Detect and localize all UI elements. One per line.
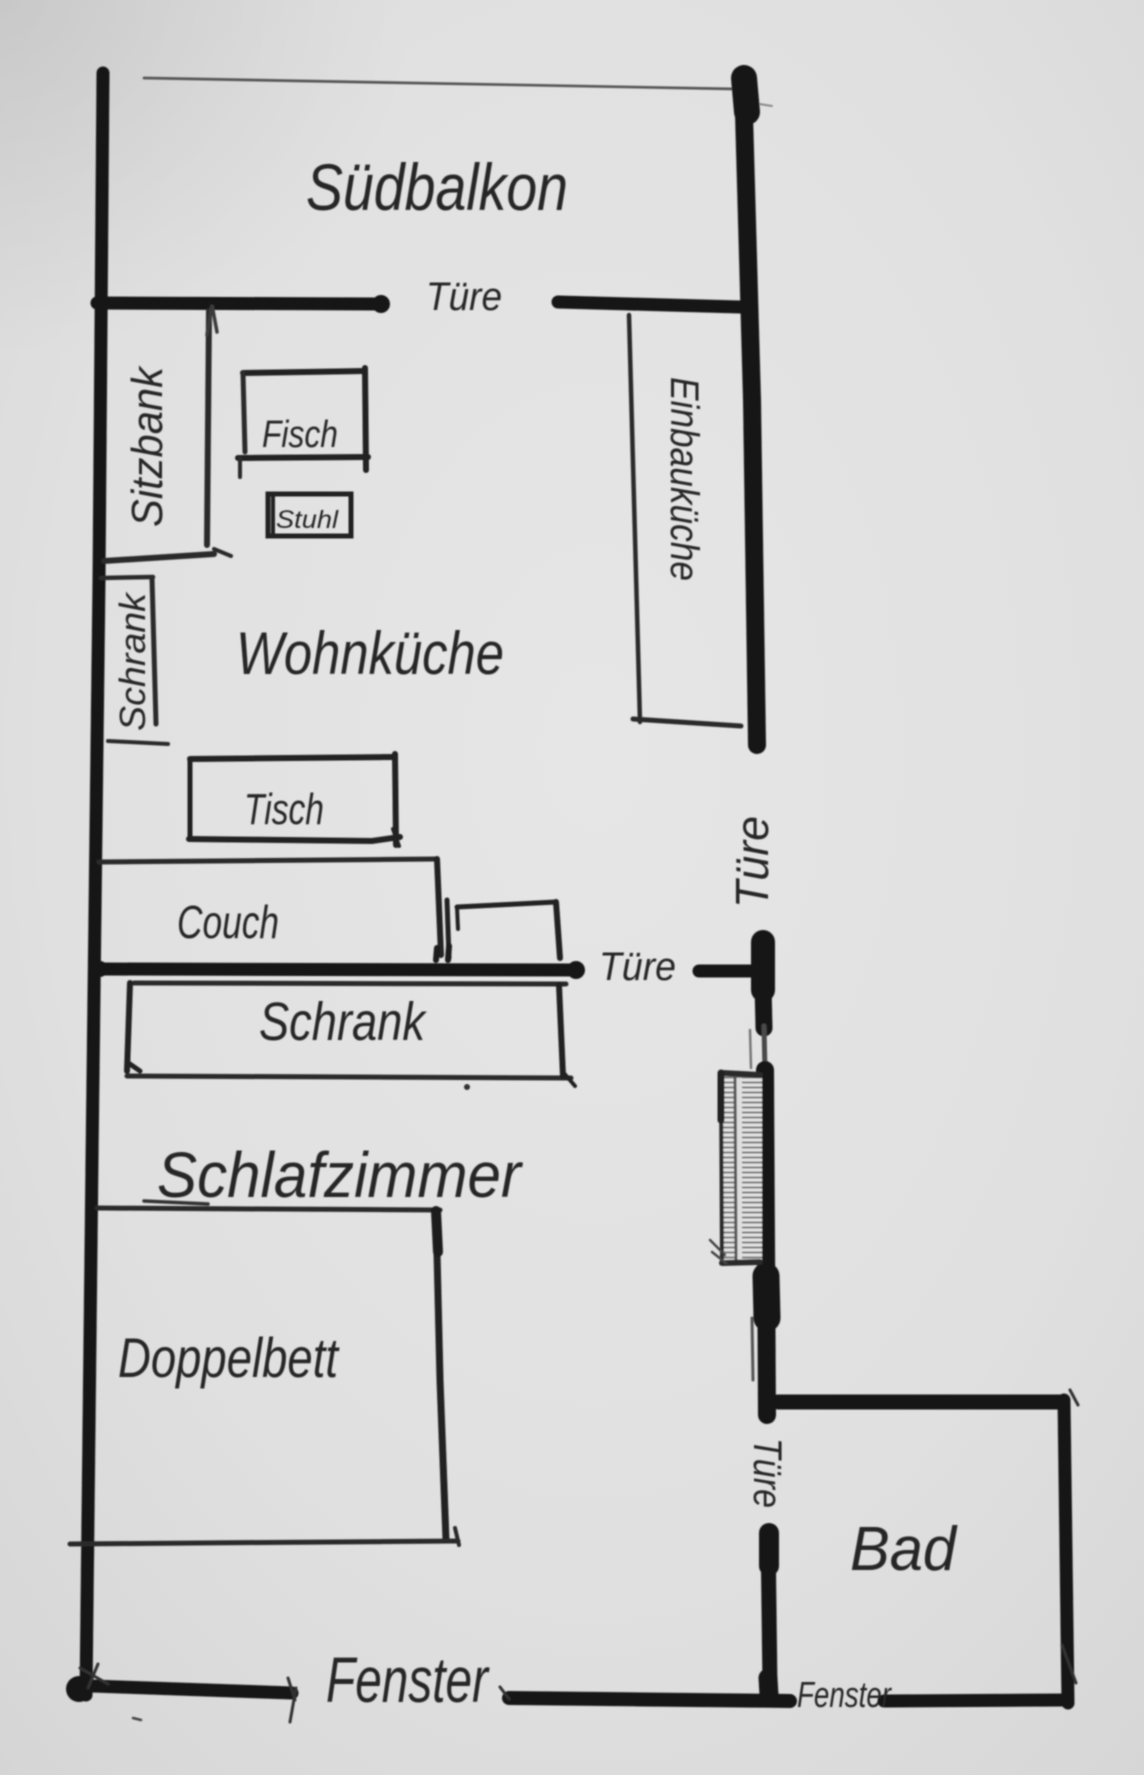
svg-text:Südbalkon: Südbalkon (306, 150, 568, 224)
svg-text:Türe: Türe (726, 816, 778, 908)
svg-text:Schrank: Schrank (112, 591, 153, 731)
svg-text:Tisch: Tisch (244, 785, 324, 834)
svg-text:Türe: Türe (745, 1438, 789, 1508)
svg-text:Schlafzimmer: Schlafzimmer (157, 1139, 524, 1211)
svg-text:Fisch: Fisch (262, 414, 338, 456)
svg-text:Türe: Türe (426, 275, 502, 319)
svg-text:Sitzbank: Sitzbank (123, 365, 172, 527)
svg-text:Schrank: Schrank (259, 992, 428, 1052)
svg-text:Doppelbett: Doppelbett (118, 1326, 340, 1389)
svg-text:Stuhl: Stuhl (276, 506, 340, 534)
svg-text:Einbauküche: Einbauküche (662, 377, 706, 581)
svg-text:Fenster: Fenster (326, 1644, 490, 1716)
svg-text:Fenster: Fenster (797, 1674, 893, 1715)
svg-text:Wohnküche: Wohnküche (236, 620, 504, 687)
svg-text:Bad: Bad (850, 1515, 958, 1584)
svg-text:Türe: Türe (599, 945, 676, 989)
svg-text:Couch: Couch (177, 896, 279, 948)
